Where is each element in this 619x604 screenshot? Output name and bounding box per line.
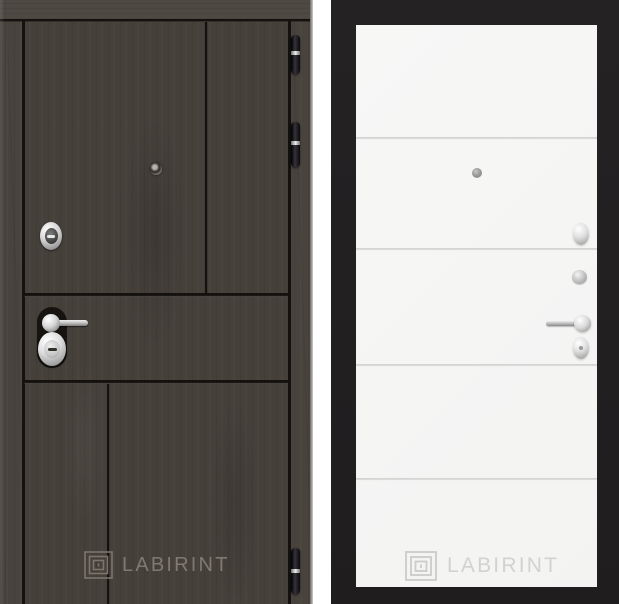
labirint-maze-icon [84,551,113,579]
brand-logo: LABIRINT [84,551,230,579]
cylinder-lock [40,222,62,250]
hinge-band [291,141,300,145]
brand-logo: LABIRINT [405,551,559,581]
door-interior-photo: LABIRINT [331,0,619,604]
handle-rose [574,315,591,332]
peephole [472,168,482,178]
hinge-band [291,569,300,573]
lock-cylinder [572,270,587,284]
knob-slot [579,346,583,350]
door-frame-top [0,0,313,19]
panel-groove-horizontal-1 [24,293,288,297]
panel-groove-horizontal-2 [24,380,288,384]
photo-left-edge [0,0,6,604]
door-product-image: LABIRINT [0,0,619,604]
labirint-maze-icon [405,551,437,581]
keyhole-escutcheon [38,332,66,366]
hinge-band [291,51,300,55]
keyhole-slot [48,348,57,351]
frame-groove-top [0,19,310,22]
panel-groove-vertical-top [205,22,208,294]
panel-groove-3 [356,364,597,367]
panel-groove-2 [356,248,597,251]
keyhole-slot [47,235,55,238]
handle-rose [42,314,60,332]
panel-groove-4 [356,478,597,481]
hinge [291,35,300,74]
brand-name: LABIRINT [447,554,559,578]
peephole [150,163,162,175]
frame-groove-right [288,21,291,604]
panel-groove-1 [356,137,597,140]
door-exterior-photo: LABIRINT [0,0,313,604]
frame-groove-left [22,21,25,604]
cylinder-cover [573,223,589,245]
door-panel: LABIRINT [356,25,597,587]
turn-knob-escutcheon [573,337,589,359]
brand-name: LABIRINT [122,554,230,577]
hinge [291,548,300,594]
photo-right-edge [310,0,313,604]
hinge [291,122,300,167]
